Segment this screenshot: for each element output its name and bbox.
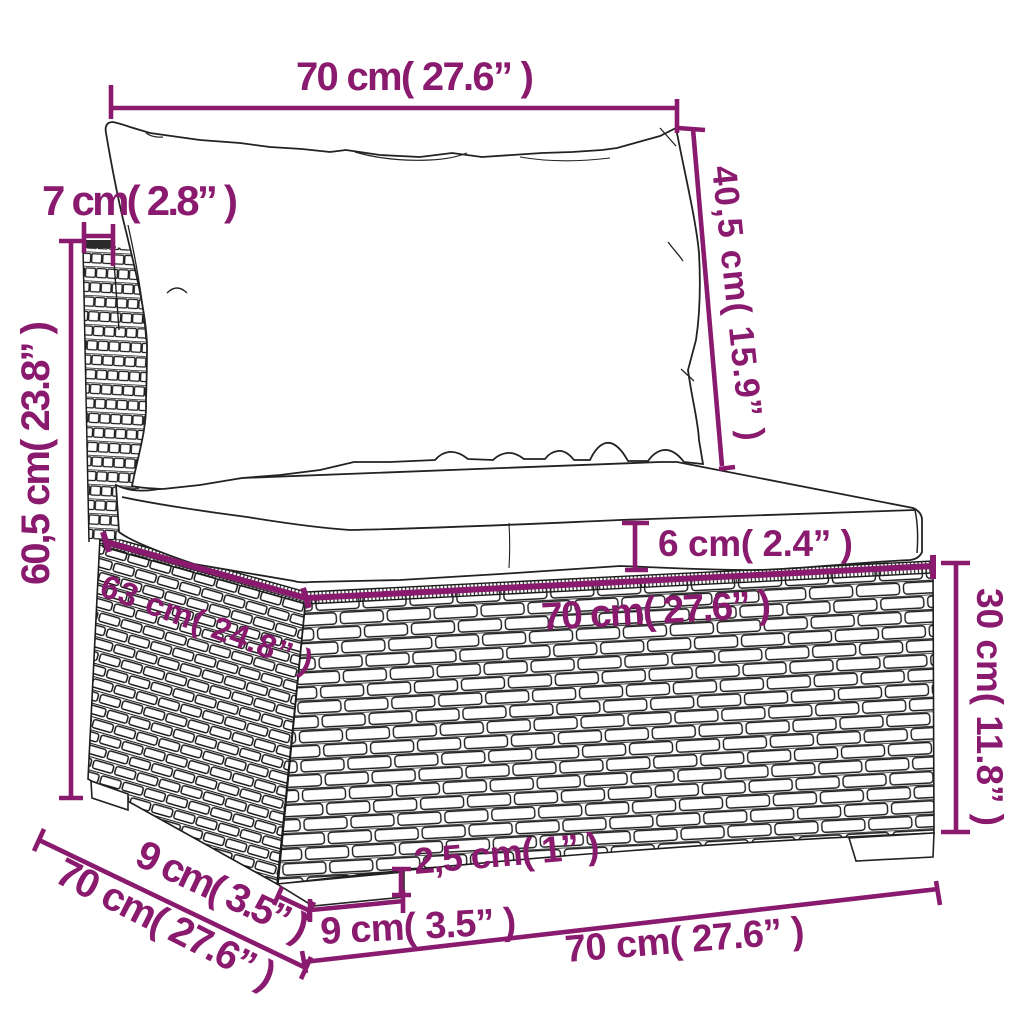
svg-text:7 cm( 2.8” ): 7 cm( 2.8” ): [42, 177, 238, 224]
svg-text:70 cm( 27.6” ): 70 cm( 27.6” ): [296, 55, 534, 99]
svg-text:30 cm( 11.8” ): 30 cm( 11.8” ): [969, 588, 1010, 826]
svg-text:60,5 cm( 23.8” ): 60,5 cm( 23.8” ): [14, 321, 58, 585]
svg-text:6 cm( 2.4” ): 6 cm( 2.4” ): [658, 523, 853, 564]
